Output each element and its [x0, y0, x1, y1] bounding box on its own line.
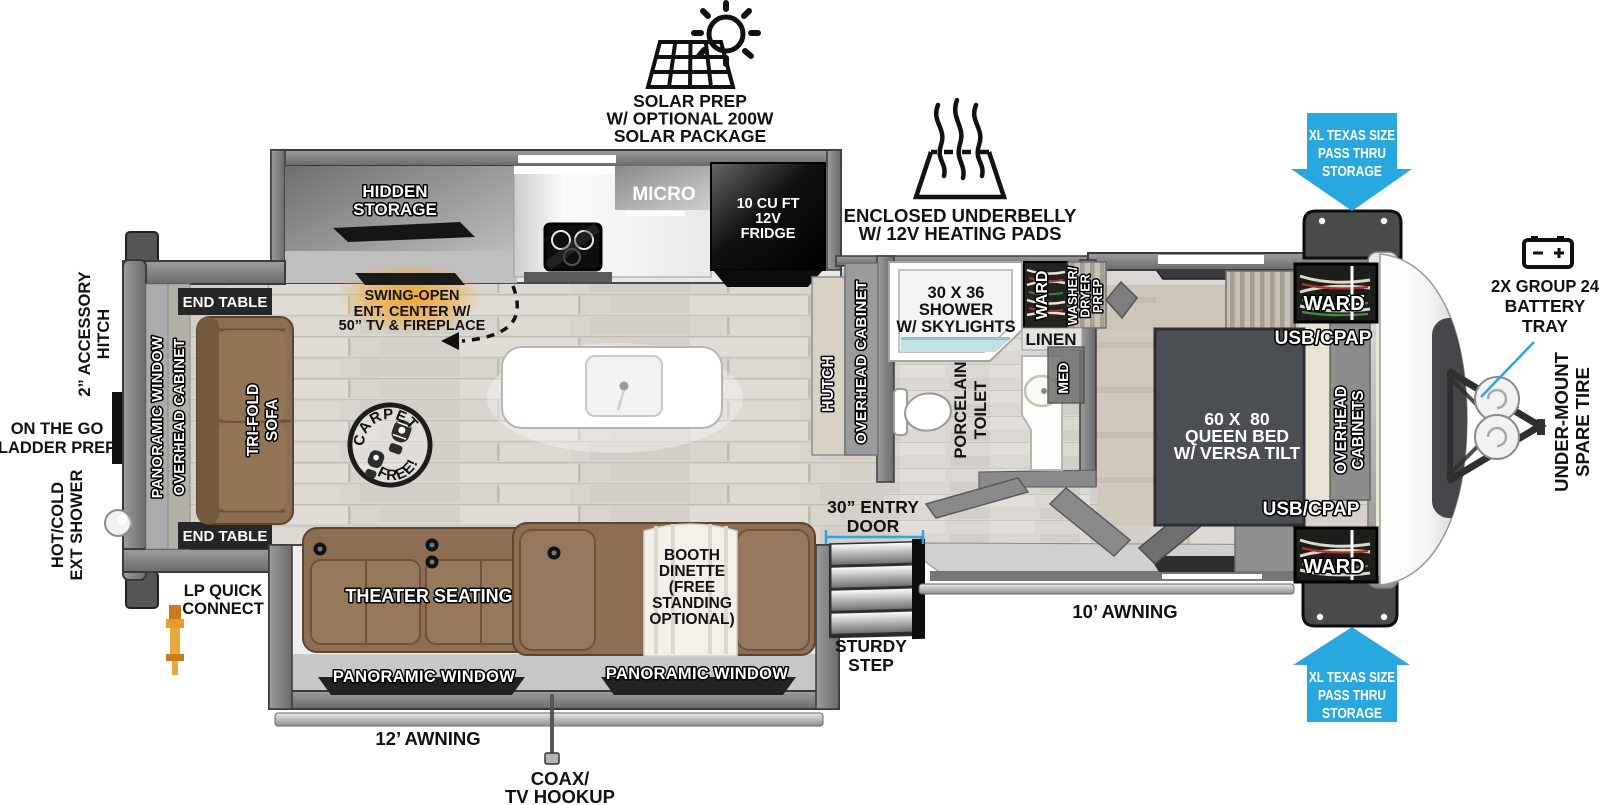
svg-text:XL TEXAS SIZE: XL TEXAS SIZE	[1309, 670, 1395, 686]
svg-text:(FREE: (FREE	[669, 579, 716, 596]
svg-text:TV HOOKUP: TV HOOKUP	[505, 786, 615, 805]
svg-text:FRIDGE: FRIDGE	[741, 226, 796, 242]
svg-text:USB/CPAP: USB/CPAP	[1263, 499, 1360, 520]
svg-text:DOOR: DOOR	[847, 516, 900, 536]
svg-text:CONNECT: CONNECT	[182, 600, 264, 618]
svg-text:OPTIONAL): OPTIONAL)	[649, 611, 734, 628]
svg-text:MED: MED	[1055, 362, 1071, 393]
svg-text:HIDDEN: HIDDEN	[362, 182, 427, 201]
svg-text:10 CU FT: 10 CU FT	[737, 196, 800, 212]
svg-text:12V: 12V	[755, 211, 781, 227]
svg-text:HOT/COLDEXT SHOWER: HOT/COLDEXT SHOWER	[49, 469, 86, 580]
svg-text:XL TEXAS SIZE: XL TEXAS SIZE	[1309, 128, 1395, 144]
svg-text:STORAGE: STORAGE	[353, 200, 437, 219]
svg-text:BATTERY: BATTERY	[1505, 296, 1586, 316]
svg-text:30” ENTRY: 30” ENTRY	[827, 497, 919, 517]
svg-text:WARD: WARD	[1034, 271, 1051, 320]
svg-text:PANORAMIC WINDOW: PANORAMIC WINDOW	[333, 668, 515, 686]
svg-text:W/ 12V HEATING PADS: W/ 12V HEATING PADS	[859, 223, 1062, 244]
svg-text:END TABLE: END TABLE	[183, 528, 268, 545]
svg-text:MICRO: MICRO	[632, 184, 695, 205]
svg-text:LADDER PREP: LADDER PREP	[0, 439, 116, 457]
svg-text:STURDY: STURDY	[835, 636, 907, 656]
svg-text:W/ VERSA TILT: W/ VERSA TILT	[1174, 443, 1301, 463]
svg-text:SHOWER: SHOWER	[919, 301, 993, 319]
svg-text:30 X 36: 30 X 36	[928, 284, 985, 302]
svg-text:50” TV & FIREPLACE: 50” TV & FIREPLACE	[339, 318, 486, 334]
svg-text:STORAGE: STORAGE	[1322, 706, 1382, 722]
svg-text:2X GROUP 24: 2X GROUP 24	[1491, 276, 1599, 296]
svg-text:THEATER SEATING: THEATER SEATING	[345, 586, 512, 606]
svg-text:W/ SKYLIGHTS: W/ SKYLIGHTS	[896, 318, 1015, 336]
svg-text:BOOTH: BOOTH	[664, 547, 720, 564]
svg-text:SOLAR PACKAGE: SOLAR PACKAGE	[614, 126, 766, 146]
svg-text:WARD: WARD	[1303, 556, 1364, 578]
svg-text:STANDING: STANDING	[652, 595, 732, 612]
svg-text:ON THE GO: ON THE GO	[11, 420, 104, 438]
svg-text:HUTCH: HUTCH	[820, 356, 837, 412]
svg-text:UNDER-MOUNTSPARE TIRE: UNDER-MOUNTSPARE TIRE	[1551, 351, 1593, 491]
svg-text:WARD: WARD	[1303, 293, 1364, 315]
svg-text:PASS THRU: PASS THRU	[1318, 688, 1386, 704]
svg-text:SWING-OPEN: SWING-OPEN	[364, 288, 459, 304]
svg-text:STEP: STEP	[848, 655, 894, 675]
svg-text:TRAY: TRAY	[1522, 316, 1568, 336]
svg-text:PANORAMIC WINDOW: PANORAMIC WINDOW	[606, 665, 788, 683]
svg-text:10’ AWNING: 10’ AWNING	[1072, 601, 1177, 622]
svg-text:PANORAMIC WINDOW: PANORAMIC WINDOW	[150, 336, 166, 498]
svg-text:PASS THRU: PASS THRU	[1318, 146, 1386, 162]
svg-text:OVERHEADCABINETS: OVERHEADCABINETS	[1333, 386, 1367, 474]
svg-text:12’ AWNING: 12’ AWNING	[375, 728, 480, 749]
svg-text:END TABLE: END TABLE	[183, 294, 268, 311]
svg-text:USB/CPAP: USB/CPAP	[1275, 328, 1372, 349]
svg-text:STORAGE: STORAGE	[1322, 164, 1382, 180]
svg-text:LP QUICK: LP QUICK	[184, 582, 263, 600]
svg-text:OVERHEAD CABINET: OVERHEAD CABINET	[172, 338, 188, 495]
svg-text:OVERHEAD CABINET: OVERHEAD CABINET	[853, 280, 870, 444]
svg-text:DINETTE: DINETTE	[659, 563, 725, 580]
svg-text:LINEN: LINEN	[1026, 330, 1077, 349]
